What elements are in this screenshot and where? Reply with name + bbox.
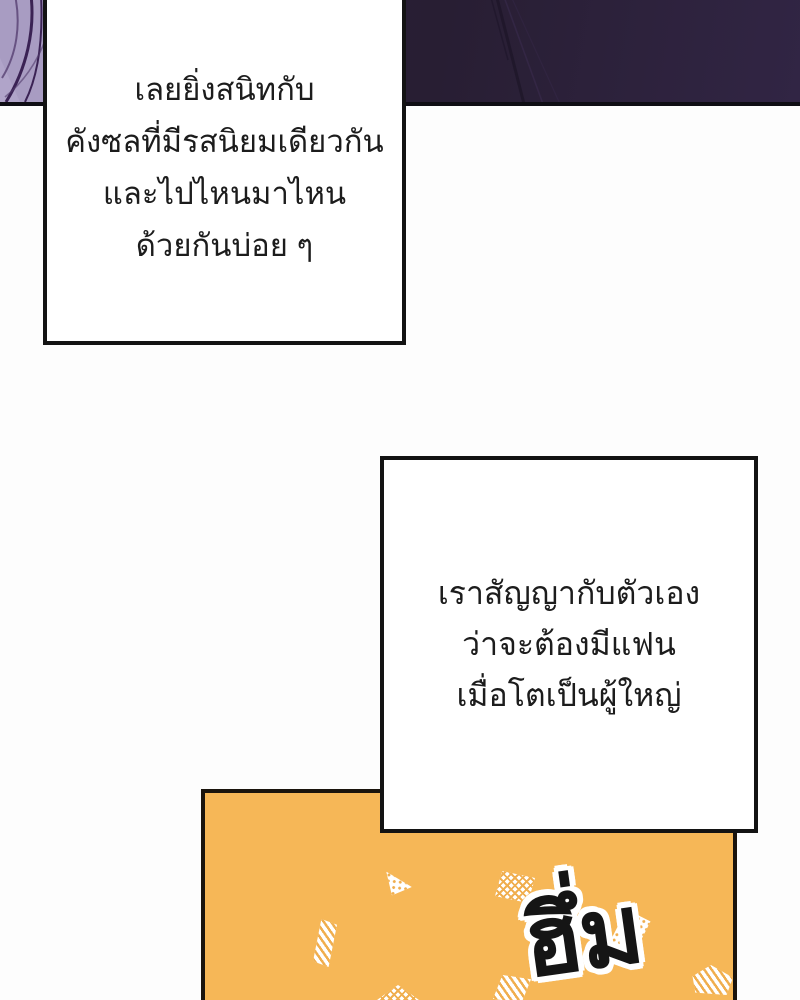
confetti-parallelogram-striped-icon: [313, 919, 337, 967]
narration-line: เมื่อโตเป็นผู้ใหญ่: [384, 670, 754, 721]
sfx-text: ฮึ่ม: [516, 871, 649, 1000]
narration-line: คังซลที่มีรสนิยมเดียวกัน: [47, 116, 402, 168]
confetti-triangle-dotted-icon: [384, 872, 413, 898]
narration-line: เลยยิ่งสนิทกับ: [47, 64, 402, 116]
narration-line: เราสัญญากับตัวเอง: [384, 568, 754, 619]
hair-strands-icon: [0, 0, 46, 102]
narration-line: ด้วยกันบ่อย ๆ: [47, 220, 402, 272]
narration-box-1: เลยยิ่งสนิทกับ คังซลที่มีรสนิยมเดียวกัน …: [43, 0, 406, 345]
comic-page: ฮึ่ม เลยยิ่งสนิทกับ คังซลที่มีรสนิยมเดีย…: [0, 0, 800, 1000]
left-art-sliver: [0, 0, 46, 102]
narration-line: และไปไหนมาไหน: [47, 168, 402, 220]
narration-box-1-text: เลยยิ่งสนิทกับ คังซลที่มีรสนิยมเดียวกัน …: [47, 64, 402, 272]
confetti-diamond-crosshatch-icon: [377, 985, 419, 1000]
narration-box-2-text: เราสัญญากับตัวเอง ว่าจะต้องมีแฟน เมื่อโต…: [384, 568, 754, 721]
confetti-hexagon-striped-icon: [687, 965, 733, 995]
narration-box-2: เราสัญญากับตัวเอง ว่าจะต้องมีแฟน เมื่อโต…: [380, 456, 758, 833]
narration-line: ว่าจะต้องมีแฟน: [384, 619, 754, 670]
confetti-parallelogram-striped-icon: [493, 975, 531, 1000]
